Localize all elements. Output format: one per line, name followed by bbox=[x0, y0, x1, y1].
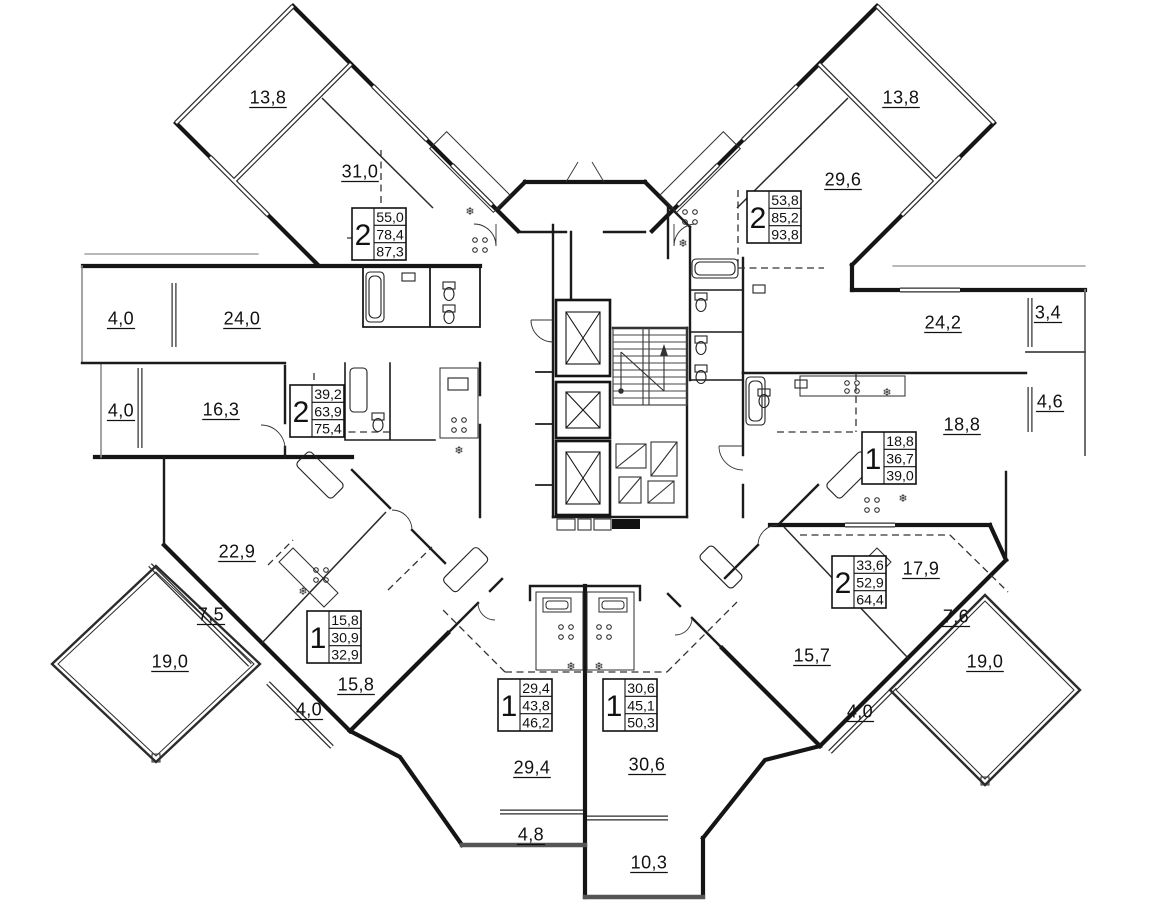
svg-text:4,6: 4,6 bbox=[1037, 392, 1063, 412]
ac-unit-icon: ❄ bbox=[298, 586, 307, 598]
apartment-room-count: 2 bbox=[293, 396, 310, 429]
apartment-room-count: 1 bbox=[606, 690, 623, 723]
terrace-outlines bbox=[52, 566, 1080, 785]
staircase bbox=[613, 328, 687, 405]
apartment-total-area: 46,2 bbox=[522, 716, 550, 732]
apartment-room-count: 1 bbox=[310, 622, 327, 655]
room-area-label: 31,0 bbox=[341, 162, 379, 182]
room-area-label: 4,6 bbox=[1036, 392, 1064, 412]
svg-text:7,6: 7,6 bbox=[943, 607, 969, 627]
apartment-info-box: 118,836,739,0 bbox=[862, 432, 916, 485]
room-area-label: 29,4 bbox=[513, 758, 551, 778]
room-area-label: 17,9 bbox=[902, 559, 940, 579]
svg-text:19,0: 19,0 bbox=[967, 652, 1004, 672]
ac-unit-icon: ❄ bbox=[465, 206, 474, 218]
apartment-info-box: 130,645,150,3 bbox=[603, 679, 657, 732]
room-area-label: 24,0 bbox=[223, 309, 261, 329]
ac-unit-icon: ❄ bbox=[594, 661, 603, 673]
apartment-total-area: 39,0 bbox=[886, 469, 914, 485]
apartment-total-area: 50,3 bbox=[627, 716, 655, 732]
apartment-room-count: 2 bbox=[355, 219, 372, 252]
svg-text:31,0: 31,0 bbox=[342, 162, 379, 182]
apartment-total-area: 87,3 bbox=[376, 245, 404, 261]
room-area-label: 15,7 bbox=[793, 646, 831, 666]
svg-text:17,9: 17,9 bbox=[903, 559, 940, 579]
apartment-floor-area: 63,9 bbox=[314, 404, 342, 420]
svg-text:15,8: 15,8 bbox=[338, 675, 375, 695]
apartment-info-box: 255,078,487,3 bbox=[352, 208, 406, 261]
apartment-info-box: 233,652,964,4 bbox=[832, 556, 886, 609]
apartment-info-box: 253,885,293,8 bbox=[747, 191, 801, 244]
room-area-label: 4,0 bbox=[107, 401, 135, 421]
apartment-living-area: 55,0 bbox=[376, 210, 404, 226]
apartment-floor-area: 78,4 bbox=[376, 227, 404, 243]
room-area-label: 4,8 bbox=[517, 825, 545, 845]
svg-text:4,0: 4,0 bbox=[108, 401, 134, 421]
svg-text:3,4: 3,4 bbox=[1035, 303, 1061, 323]
svg-text:30,6: 30,6 bbox=[629, 755, 666, 775]
apartment-floor-area: 85,2 bbox=[771, 210, 799, 226]
svg-text:15,7: 15,7 bbox=[794, 646, 831, 666]
room-area-label: 19,0 bbox=[151, 652, 189, 672]
svg-text:29,4: 29,4 bbox=[514, 758, 551, 778]
apartment-room-count: 1 bbox=[501, 690, 518, 723]
room-area-label: 24,2 bbox=[924, 313, 962, 333]
svg-text:16,3: 16,3 bbox=[203, 400, 240, 420]
apartment-info-box: 115,830,932,9 bbox=[307, 611, 361, 664]
apartment-floor-area: 45,1 bbox=[627, 698, 655, 714]
room-area-label: 4,0 bbox=[107, 309, 135, 329]
svg-text:4,0: 4,0 bbox=[296, 700, 322, 720]
entrance-door-mark bbox=[612, 519, 640, 529]
room-area-label: 13,8 bbox=[882, 88, 920, 108]
room-area-label: 18,8 bbox=[943, 415, 981, 435]
apartment-room-count: 2 bbox=[750, 202, 767, 235]
svg-text:4,0: 4,0 bbox=[847, 702, 873, 722]
svg-text:18,8: 18,8 bbox=[944, 415, 981, 435]
room-area-label: 22,9 bbox=[218, 542, 256, 562]
apartment-floor-area: 30,9 bbox=[331, 630, 359, 646]
svg-text:13,8: 13,8 bbox=[250, 88, 287, 108]
apartment-floor-area: 52,9 bbox=[856, 575, 884, 591]
room-area-label: 4,0 bbox=[295, 700, 323, 720]
room-area-label: 7,5 bbox=[197, 605, 225, 625]
room-area-label: 7,6 bbox=[942, 607, 970, 627]
svg-text:4,8: 4,8 bbox=[518, 825, 544, 845]
apartment-floor-area: 36,7 bbox=[886, 451, 914, 467]
room-area-label: 13,8 bbox=[249, 88, 287, 108]
apartment-living-area: 18,8 bbox=[886, 434, 914, 450]
room-area-label: 29,6 bbox=[824, 170, 862, 190]
ac-unit-icon: ❄ bbox=[566, 661, 575, 673]
floor-plan-canvas: 13,831,024,04,04,016,322,97,519,015,84,0… bbox=[0, 0, 1170, 907]
entrance-double-door bbox=[566, 162, 604, 182]
svg-text:24,2: 24,2 bbox=[925, 313, 962, 333]
room-area-label: 16,3 bbox=[202, 400, 240, 420]
apartment-living-area: 29,4 bbox=[522, 681, 550, 697]
apartment-info-box: 239,263,975,4 bbox=[290, 385, 344, 438]
ac-unit-icon: ❄ bbox=[678, 238, 687, 250]
apartment-living-area: 39,2 bbox=[314, 387, 342, 403]
apartment-living-area: 15,8 bbox=[331, 613, 359, 629]
apartment-info-box: 129,443,846,2 bbox=[498, 679, 552, 732]
svg-text:24,0: 24,0 bbox=[224, 309, 261, 329]
apartment-room-count: 2 bbox=[835, 567, 852, 600]
elevator-core bbox=[556, 300, 610, 515]
apartment-total-area: 93,8 bbox=[771, 228, 799, 244]
room-area-label: 15,8 bbox=[337, 675, 375, 695]
ac-unit-icon: ❄ bbox=[454, 445, 463, 457]
room-area-label: 4,0 bbox=[846, 702, 874, 722]
ac-unit-icon: ❄ bbox=[882, 387, 891, 399]
svg-text:10,3: 10,3 bbox=[631, 853, 668, 873]
apartment-living-area: 53,8 bbox=[771, 193, 799, 209]
apartment-living-area: 33,6 bbox=[856, 558, 884, 574]
apartment-floor-area: 43,8 bbox=[522, 698, 550, 714]
room-area-label: 30,6 bbox=[628, 755, 666, 775]
apartment-total-area: 75,4 bbox=[314, 422, 342, 438]
svg-text:22,9: 22,9 bbox=[219, 542, 256, 562]
apartment-total-area: 32,9 bbox=[331, 648, 359, 664]
plumbing-fixtures bbox=[295, 259, 874, 593]
room-area-label: 3,4 bbox=[1034, 303, 1062, 323]
room-area-label: 10,3 bbox=[630, 853, 668, 873]
svg-text:19,0: 19,0 bbox=[152, 652, 189, 672]
room-area-label: 19,0 bbox=[966, 652, 1004, 672]
ac-unit-icon: ❄ bbox=[898, 493, 907, 505]
apartment-total-area: 64,4 bbox=[856, 593, 884, 609]
apartment-living-area: 30,6 bbox=[627, 681, 655, 697]
svg-text:13,8: 13,8 bbox=[883, 88, 920, 108]
svg-text:7,5: 7,5 bbox=[198, 605, 224, 625]
svg-text:29,6: 29,6 bbox=[825, 170, 862, 190]
apartment-room-count: 1 bbox=[865, 443, 882, 476]
svg-text:4,0: 4,0 bbox=[108, 309, 134, 329]
